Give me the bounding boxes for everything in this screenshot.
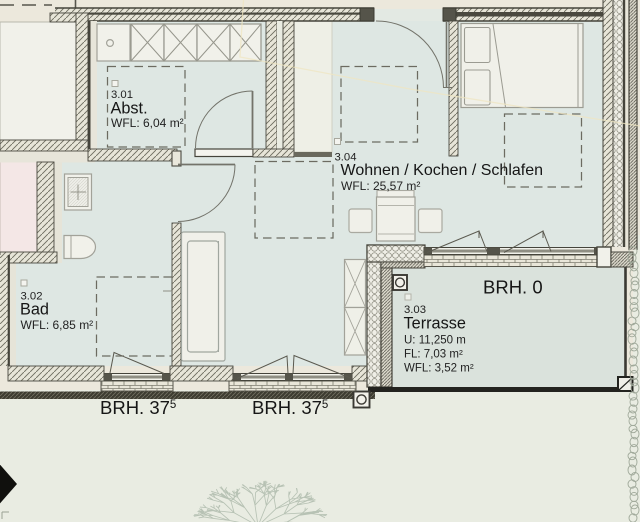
svg-text:Abst.: Abst. — [111, 100, 148, 118]
svg-text:Bad: Bad — [20, 301, 49, 319]
svg-text:BRH. 0: BRH. 0 — [483, 277, 543, 298]
svg-text:WFL: 3,52 m²: WFL: 3,52 m² — [404, 363, 474, 375]
svg-text:WFL: 25,57 m²: WFL: 25,57 m² — [341, 179, 420, 193]
svg-text:BRH. 375: BRH. 375 — [252, 397, 328, 418]
svg-text:BRH. 375: BRH. 375 — [100, 397, 176, 418]
svg-text:U: 11,250 m: U: 11,250 m — [404, 335, 466, 347]
svg-text:Terrasse: Terrasse — [404, 315, 466, 333]
svg-text:WFL: 6,85 m²: WFL: 6,85 m² — [21, 318, 94, 332]
svg-text:FL: 7,03 m²: FL: 7,03 m² — [404, 349, 463, 361]
svg-text:WFL: 6,04 m²: WFL: 6,04 m² — [111, 116, 184, 130]
svg-text:Wohnen / Kochen / Schlafen: Wohnen / Kochen / Schlafen — [341, 162, 544, 179]
